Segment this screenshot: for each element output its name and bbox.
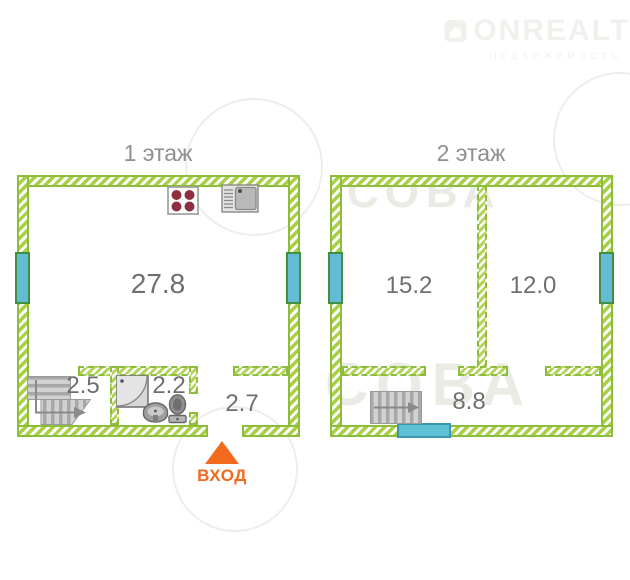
watermark-circle [185, 98, 323, 236]
kitchen-sink-icon [221, 184, 259, 213]
f1-wall-bottom-right [242, 425, 300, 437]
f1-wall-bottom-left [17, 425, 208, 437]
f1-bathroom-wall-right-lower [189, 412, 198, 425]
floorplan-image: СОВА СОВА ONREALT НЕДВИЖИМОСТЬ 1 этаж 2 … [0, 0, 630, 580]
floor1-title: 1 этаж [73, 140, 243, 167]
f2-hall-wall-middle [458, 366, 508, 376]
f2-hall-wall-left [342, 366, 426, 376]
f1-area-living: 27.8 [108, 268, 208, 300]
f2-wall-top [330, 175, 613, 187]
f1-window-left [15, 252, 30, 304]
onrealt-logo: ONREALT НЕДВИЖИМОСТЬ [444, 12, 630, 61]
floor2-title: 2 этаж [386, 140, 556, 167]
f1-wall-right [288, 175, 300, 437]
f1-window-right [286, 252, 301, 304]
f2-area-room-right: 12.0 [483, 272, 583, 300]
entrance-label: ВХОД [187, 466, 257, 486]
logo-subtitle-text: НЕДВИЖИМОСТЬ [490, 51, 630, 61]
f2-balcony-door [397, 423, 451, 438]
wash-basin-icon [142, 402, 169, 423]
f2-wall-left [330, 175, 342, 437]
f2-area-room-left: 15.2 [359, 272, 459, 300]
stairs-floor2-icon [370, 391, 422, 424]
house-icon [444, 12, 467, 50]
f2-wall-bottom [330, 425, 613, 437]
f2-window-right [599, 252, 614, 304]
f1-hallway-wall-top [233, 366, 288, 376]
entrance-arrow-icon [205, 441, 239, 464]
f2-area-hallway: 8.8 [419, 388, 519, 416]
f1-area-bathroom: 2.2 [144, 372, 194, 400]
f1-area-hallway: 2.7 [217, 390, 267, 418]
f2-window-left [328, 252, 343, 304]
logo-brand-text: ONREALT [473, 14, 630, 48]
f1-area-stairs: 2.5 [58, 372, 108, 400]
f2-wall-right [601, 175, 613, 437]
stove-icon [167, 186, 199, 215]
f2-hall-wall-right [545, 366, 601, 376]
